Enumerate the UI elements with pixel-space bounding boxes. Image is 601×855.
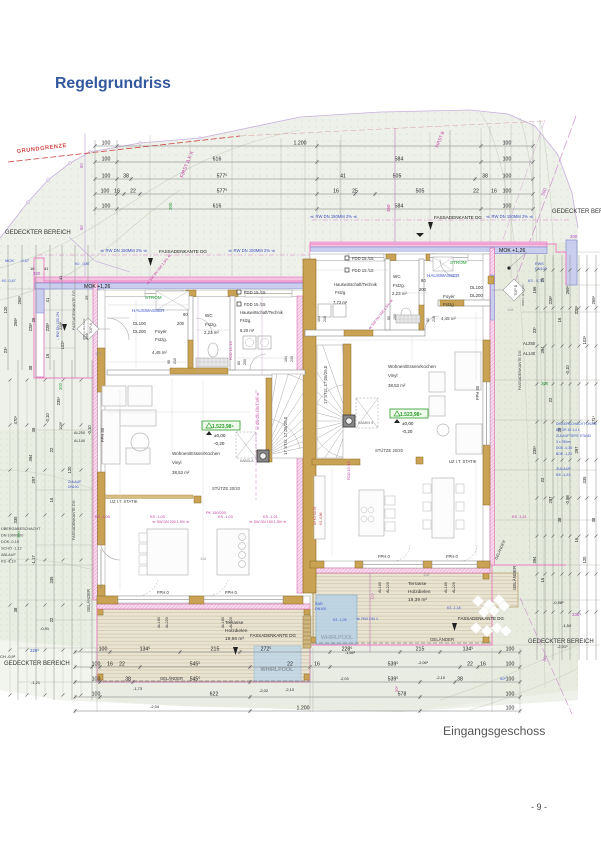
svg-text:KS -0,86: KS -0,86 (319, 512, 323, 525)
svg-text:ABLAUF: ABLAUF (1, 553, 16, 557)
svg-text:215: 215 (211, 647, 220, 653)
svg-text:K5 -1,23: K5 -1,23 (556, 473, 570, 477)
svg-text:16: 16 (49, 497, 54, 502)
svg-text:FPH 80: FPH 80 (475, 385, 480, 400)
svg-text:Hauswirtschaft/Technik: Hauswirtschaft/Technik (334, 282, 378, 287)
svg-text:228⁵: 228⁵ (45, 322, 50, 331)
svg-text:Wohnen/Essen/Kochen: Wohnen/Essen/Kochen (388, 364, 436, 369)
svg-text:16: 16 (45, 353, 50, 358)
svg-text:210: 210 (290, 356, 294, 362)
svg-text:120: 120 (582, 556, 587, 564)
svg-text:394: 394 (532, 556, 537, 564)
svg-text:19,39 m²: 19,39 m² (408, 597, 427, 603)
svg-text:300: 300 (58, 382, 63, 390)
svg-text:505: 505 (416, 189, 425, 195)
svg-text:100: 100 (99, 647, 108, 653)
svg-text:KS -1,05: KS -1,05 (150, 515, 165, 519)
svg-text:FASSADENKANTE DG: FASSADENKANTE DG (72, 500, 76, 540)
svg-text:Foyér: Foyér (443, 294, 455, 299)
svg-text:38: 38 (457, 677, 463, 683)
svg-text:38: 38 (123, 174, 129, 180)
svg-text:38: 38 (557, 517, 562, 522)
svg-text:23⁵: 23⁵ (3, 347, 8, 354)
svg-text:100: 100 (92, 662, 101, 668)
svg-text:50⁵: 50⁵ (394, 686, 399, 692)
svg-text:UZ I.T. STATIK: UZ I.T. STATIK (110, 499, 138, 504)
svg-text:AL220: AL220 (386, 582, 390, 593)
svg-text:269⁵: 269⁵ (565, 285, 570, 294)
svg-text:FDD 15 /15: FDD 15 /15 (352, 268, 374, 273)
svg-text:Holzdielen: Holzdielen (408, 589, 431, 595)
svg-text:AL160: AL160 (378, 582, 382, 593)
svg-text:Foyér: Foyér (155, 329, 167, 334)
svg-text:GEDECKTER BEREICH: GEDECKTER BEREICH (528, 639, 594, 645)
svg-text:17 STG: 17,06/26,0: 17 STG: 17,06/26,0 (283, 416, 288, 455)
svg-text:50: 50 (79, 163, 84, 168)
svg-text:≪ SW DN 150 1,5% ≪: ≪ SW DN 150 1,5% ≪ (249, 520, 287, 524)
svg-text:AL250: AL250 (523, 341, 536, 346)
svg-text:268⁵: 268⁵ (17, 295, 22, 304)
svg-text:Vinyl: Vinyl (172, 460, 181, 465)
svg-text:ZULAUF: ZULAUF (68, 480, 81, 484)
svg-text:22: 22 (540, 477, 545, 482)
svg-text:Wohnen/Essen/Kochen: Wohnen/Essen/Kochen (172, 451, 220, 456)
svg-text:DOK -0,35: DOK -0,35 (556, 446, 572, 450)
svg-text:16: 16 (314, 662, 320, 668)
svg-text:166: 166 (84, 333, 89, 340)
svg-text:AL220: AL220 (229, 617, 233, 628)
svg-text:Fstzg.: Fstzg. (155, 337, 167, 342)
svg-text:200: 200 (393, 314, 397, 320)
svg-text:1.523,98⁵: 1.523,98⁵ (400, 412, 422, 418)
svg-text:335: 335 (49, 576, 54, 584)
svg-text:AL220: AL220 (165, 617, 169, 628)
svg-text:616: 616 (213, 204, 222, 210)
svg-text:210: 210 (173, 358, 177, 364)
svg-text:DOK -0,10: DOK -0,10 (1, 540, 19, 544)
svg-text:545⁵: 545⁵ (190, 677, 201, 683)
svg-text:41: 41 (45, 297, 50, 302)
svg-text:≪ RW DN 150MM 2% ≪: ≪ RW DN 150MM 2% ≪ (486, 214, 534, 219)
svg-text:FPH 0: FPH 0 (225, 590, 238, 595)
svg-text:297: 297 (574, 446, 579, 454)
svg-text:WC: WC (205, 313, 213, 318)
svg-text:Terrasse: Terrasse (408, 581, 427, 587)
svg-text:FDD 15 /15: FDD 15 /15 (244, 290, 266, 295)
svg-text:470⁵: 470⁵ (13, 415, 18, 424)
svg-text:±0,00: ±0,00 (402, 421, 414, 426)
svg-text:100: 100 (506, 677, 515, 683)
svg-text:FPH 0: FPH 0 (378, 554, 391, 559)
svg-text:GELÄNDER: GELÄNDER (160, 676, 183, 681)
svg-text:Hauswirtschaft/Technik: Hauswirtschaft/Technik (240, 310, 284, 315)
svg-text:100: 100 (506, 692, 515, 698)
svg-text:297: 297 (548, 496, 553, 504)
svg-text:HAUSWASSER: HAUSWASSER (132, 308, 165, 313)
svg-text:38,53 m²: 38,53 m² (388, 383, 406, 388)
svg-text:577⁵: 577⁵ (217, 174, 228, 180)
svg-text:±0,00: ±0,00 (214, 433, 226, 438)
svg-text:AL160: AL160 (157, 617, 161, 628)
svg-text:GEDECKTER BEREICH: GEDECKTER BEREICH (4, 661, 70, 667)
svg-text:4,45 m²: 4,45 m² (441, 316, 456, 321)
svg-text:-1,56⁵: -1,56⁵ (345, 651, 356, 655)
svg-text:41: 41 (340, 174, 346, 180)
svg-text:3 x 780m³: 3 x 780m³ (556, 440, 572, 444)
svg-text:-2,10: -2,10 (436, 675, 446, 680)
svg-text:-0,67: -0,67 (20, 258, 30, 263)
svg-text:584: 584 (395, 204, 404, 210)
svg-text:228⁵: 228⁵ (548, 295, 553, 304)
svg-text:- 9 -: - 9 - (531, 802, 547, 812)
svg-text:GELÄNDER: GELÄNDER (430, 637, 454, 642)
svg-text:300: 300 (33, 271, 41, 276)
svg-text:16: 16 (480, 662, 486, 668)
svg-text:-2,06⁵: -2,06⁵ (418, 661, 429, 665)
svg-text:DN100: DN100 (315, 607, 326, 611)
svg-text:-0,20: -0,20 (402, 429, 413, 434)
svg-text:100: 100 (102, 157, 111, 163)
svg-text:38: 38 (125, 677, 131, 683)
svg-text:336⁵: 336⁵ (572, 612, 581, 617)
svg-text:215: 215 (416, 647, 425, 653)
svg-text:DN100: DN100 (68, 485, 79, 489)
svg-text:HAUSWASSER: HAUSWASSER (427, 273, 460, 278)
svg-text:-0,10: -0,10 (87, 425, 92, 435)
svg-text:16: 16 (30, 266, 35, 271)
svg-text:Eingangsgeschoss: Eingangsgeschoss (443, 724, 545, 738)
svg-text:Fstzg.: Fstzg. (335, 290, 346, 295)
svg-text:Regelgrundriss: Regelgrundriss (55, 75, 171, 92)
svg-text:GEDECKTER BEREICH: GEDECKTER BEREICH (5, 230, 71, 236)
svg-text:300: 300 (168, 202, 173, 210)
svg-text:539⁵: 539⁵ (388, 662, 399, 668)
svg-text:228⁵: 228⁵ (58, 321, 63, 330)
svg-text:-2,02: -2,02 (259, 688, 269, 693)
svg-text:335: 335 (13, 516, 18, 524)
svg-text:104: 104 (284, 356, 288, 362)
svg-text:-2,10: -2,10 (285, 687, 295, 692)
svg-text:22: 22 (548, 397, 553, 402)
svg-text:300: 300 (570, 234, 578, 239)
svg-text:297: 297 (31, 476, 36, 484)
svg-text:622: 622 (210, 692, 219, 698)
svg-text:KS -1,01: KS -1,01 (263, 515, 278, 519)
svg-text:-1,21: -1,21 (31, 680, 41, 685)
svg-text:16: 16 (557, 317, 562, 322)
svg-text:100: 100 (503, 141, 512, 147)
svg-text:AL220: AL220 (452, 582, 456, 593)
svg-text:100: 100 (503, 157, 512, 163)
svg-text:-0,10: -0,10 (565, 365, 570, 375)
svg-text:16: 16 (333, 189, 339, 195)
svg-text:7,72 m²: 7,72 m² (333, 300, 348, 305)
svg-text:228⁵: 228⁵ (574, 305, 579, 314)
svg-text:Fstzg.: Fstzg. (443, 302, 455, 307)
svg-text:100: 100 (506, 662, 515, 668)
svg-text:TOP B: TOP B (514, 284, 518, 296)
svg-text:100: 100 (102, 174, 111, 180)
svg-text:300: 300 (541, 381, 549, 386)
svg-text:FASSADENKANTE DG: FASSADENKANTE DG (458, 616, 504, 621)
svg-text:22: 22 (119, 662, 125, 668)
svg-text:≪ SW DN 100 1,5% ≪: ≪ SW DN 100 1,5% ≪ (256, 392, 260, 430)
svg-text:-0,20: -0,20 (214, 441, 225, 446)
svg-text:FASSADENKANTE DG: FASSADENKANTE DG (250, 633, 296, 638)
svg-text:FDO 15 /15: FDO 15 /15 (347, 461, 351, 480)
svg-text:38,53 m²: 38,53 m² (172, 470, 190, 475)
svg-text:8,20 m²: 8,20 m² (240, 328, 255, 333)
svg-text:577⁵: 577⁵ (217, 189, 228, 195)
svg-text:WC: WC (393, 274, 401, 279)
svg-text:CH -0,9⁵: CH -0,9⁵ (0, 654, 16, 659)
svg-text:38: 38 (31, 427, 36, 432)
svg-text:≪ RW DN 1: ≪ RW DN 1 (356, 616, 379, 621)
svg-text:K0 - 0,87: K0 - 0,87 (75, 262, 90, 266)
svg-text:16: 16 (107, 662, 113, 668)
svg-text:GELÄNDER: GELÄNDER (86, 589, 91, 612)
svg-text:ÜBERGABESCHACHT: ÜBERGABESCHACHT (1, 527, 41, 531)
svg-text:DL100: DL100 (133, 321, 146, 326)
svg-text:1.200: 1.200 (294, 141, 307, 147)
svg-text:Fstzg.: Fstzg. (393, 283, 405, 288)
svg-text:FASSADENKANTE DG: FASSADENKANTE DG (518, 350, 522, 390)
svg-text:38: 38 (591, 517, 596, 522)
svg-text:MOK +1,26: MOK +1,26 (499, 248, 525, 254)
svg-text:BOK -1,23: BOK -1,23 (556, 452, 572, 456)
svg-text:KS -1,21: KS -1,21 (512, 515, 527, 519)
svg-text:FASSADENKANTE DG: FASSADENKANTE DG (434, 215, 482, 220)
svg-text:K0 -0,87: K0 -0,87 (2, 279, 16, 283)
svg-text:200: 200 (243, 359, 247, 365)
svg-text:KS -1,10: KS -1,10 (1, 560, 16, 564)
svg-text:50⁵: 50⁵ (500, 676, 506, 681)
svg-text:AL140: AL140 (74, 439, 85, 443)
svg-text:17 STG: 17,06/26,0: 17 STG: 17,06/26,0 (323, 365, 328, 404)
svg-text:100: 100 (101, 189, 110, 195)
svg-text:STÜTZE 20/20: STÜTZE 20/20 (375, 448, 404, 453)
svg-text:118: 118 (423, 572, 430, 577)
svg-text:AL160: AL160 (444, 582, 448, 593)
svg-text:210: 210 (323, 316, 327, 322)
svg-text:ZULAUF: ZULAUF (556, 467, 571, 471)
svg-text:-0,98⁵: -0,98⁵ (553, 600, 564, 605)
svg-text:MOK: MOK (5, 258, 14, 263)
svg-text:200: 200 (419, 287, 427, 292)
svg-text:FPH 80: FPH 80 (100, 427, 105, 442)
svg-text:Vinyl: Vinyl (388, 373, 397, 378)
svg-text:-0,91: -0,91 (40, 626, 50, 631)
svg-text:235⁵: 235⁵ (532, 445, 537, 454)
svg-text:1.200: 1.200 (297, 706, 310, 712)
svg-text:584: 584 (395, 157, 404, 163)
svg-text:90: 90 (167, 360, 171, 364)
svg-text:K3 -1,05: K3 -1,05 (333, 618, 347, 622)
svg-text:16: 16 (491, 189, 497, 195)
svg-text:BE GR 15 1,4 L: BE GR 15 1,4 L (556, 428, 580, 432)
svg-text:AL250: AL250 (74, 431, 85, 435)
svg-text:AL160: AL160 (221, 617, 225, 628)
svg-text:FASSADENKANTE DG: FASSADENKANTE DG (159, 249, 207, 254)
svg-text:104: 104 (317, 316, 321, 322)
svg-text:269⁵: 269⁵ (13, 317, 18, 326)
svg-text:FDD 15 /15: FDD 15 /15 (244, 302, 266, 307)
svg-text:80: 80 (183, 312, 188, 317)
svg-text:16: 16 (540, 577, 545, 582)
svg-text:120: 120 (3, 306, 8, 314)
svg-text:100: 100 (506, 706, 515, 712)
svg-text:22: 22 (473, 189, 479, 195)
svg-text:2,23 m²: 2,23 m² (392, 291, 407, 296)
svg-text:Fstzg.: Fstzg. (240, 318, 251, 323)
svg-text:100: 100 (503, 174, 512, 180)
svg-text:100: 100 (92, 677, 101, 683)
svg-text:38: 38 (482, 174, 488, 180)
svg-text:A9 K3 SU 55: A9 K3 SU 55 (313, 506, 317, 525)
svg-text:272⁵: 272⁵ (261, 647, 272, 653)
svg-text:Terrasse: Terrasse (225, 620, 244, 626)
svg-text:25: 25 (84, 295, 89, 300)
svg-text:118: 118 (200, 556, 207, 561)
svg-text:-2,03: -2,03 (340, 677, 349, 681)
svg-text:166: 166 (532, 286, 537, 294)
svg-text:328⁵: 328⁵ (30, 648, 39, 653)
svg-text:≪ RW DN 150MM 2% ≪: ≪ RW DN 150MM 2% ≪ (310, 214, 358, 219)
svg-text:-1,54: -1,54 (562, 623, 572, 628)
svg-text:22: 22 (467, 662, 473, 668)
svg-text:≪ RW DN 150MM 2% ≪: ≪ RW DN 150MM 2% ≪ (228, 248, 276, 253)
svg-text:22: 22 (49, 617, 54, 622)
svg-text:FDO 15 /15: FDO 15 /15 (229, 341, 233, 360)
svg-text:22: 22 (287, 662, 293, 668)
svg-text:STROM: STROM (145, 295, 162, 300)
svg-text:4,45 m²: 4,45 m² (152, 350, 167, 355)
svg-text:DL200: DL200 (133, 329, 146, 334)
svg-text:269⁵: 269⁵ (591, 295, 596, 304)
svg-text:-0,98: -0,98 (565, 495, 570, 505)
svg-text:134⁵: 134⁵ (140, 647, 151, 653)
svg-text:228⁵: 228⁵ (28, 322, 33, 331)
svg-text:DL200: DL200 (470, 293, 483, 298)
svg-text:38: 38 (13, 607, 18, 612)
svg-text:FPH 0: FPH 0 (157, 590, 170, 595)
svg-text:-1,17: -1,17 (31, 555, 36, 565)
svg-text:≪ RW DN 150MM 2% ≪: ≪ RW DN 150MM 2% ≪ (100, 248, 148, 253)
svg-text:RAR: RAR (315, 602, 323, 606)
svg-text:235⁵: 235⁵ (56, 396, 61, 405)
svg-text:KABOLA: KABOLA (240, 459, 254, 463)
svg-text:210: 210 (432, 316, 436, 322)
svg-text:25: 25 (540, 277, 545, 282)
svg-text:UZ I.T. STATIK: UZ I.T. STATIK (449, 459, 477, 464)
svg-text:STROM: STROM (450, 260, 467, 265)
svg-text:WHIRLPOOL: WHIRLPOOL (321, 635, 353, 641)
svg-text:200: 200 (177, 321, 185, 326)
svg-text:394: 394 (540, 346, 545, 354)
svg-text:22: 22 (130, 189, 136, 195)
svg-text:22: 22 (49, 447, 54, 452)
svg-text:25: 25 (31, 317, 36, 322)
svg-text:ZULAUFTIEFE STAND: ZULAUFTIEFE STAND (556, 434, 592, 438)
svg-text:19,66 m²: 19,66 m² (225, 636, 244, 642)
svg-text:103⁵: 103⁵ (58, 421, 63, 430)
svg-text:K3 -1,18: K3 -1,18 (447, 606, 461, 610)
svg-text:335: 335 (582, 476, 587, 484)
svg-text:134⁵: 134⁵ (463, 647, 474, 653)
svg-text:120: 120 (67, 466, 72, 474)
svg-text:≪ SW DN 200 1,5% ≪: ≪ SW DN 200 1,5% ≪ (152, 520, 190, 524)
svg-text:80: 80 (237, 361, 241, 365)
svg-text:DICKERSCHACHT DN100: DICKERSCHACHT DN100 (556, 422, 597, 426)
svg-text:350: 350 (386, 204, 391, 212)
svg-text:50: 50 (79, 225, 84, 230)
svg-text:Fstzg.: Fstzg. (205, 322, 217, 327)
svg-text:103⁵: 103⁵ (60, 340, 65, 349)
svg-text:80: 80 (421, 278, 426, 283)
svg-text:80: 80 (387, 316, 391, 320)
svg-text:100: 100 (506, 647, 515, 653)
svg-text:100: 100 (92, 692, 101, 698)
svg-text:100: 100 (102, 204, 111, 210)
svg-text:-2,04: -2,04 (150, 704, 160, 709)
svg-text:GELÄNDER: GELÄNDER (512, 566, 517, 590)
svg-text:116: 116 (95, 351, 102, 356)
svg-text:539⁵: 539⁵ (388, 677, 399, 683)
svg-text:DL100: DL100 (470, 285, 483, 290)
svg-text:41: 41 (44, 266, 49, 271)
svg-text:100: 100 (503, 189, 512, 195)
svg-text:FASSADENKANTE DG: FASSADENKANTE DG (72, 290, 76, 330)
svg-text:616: 616 (213, 157, 222, 163)
svg-text:SCHÖ -1,12: SCHÖ -1,12 (1, 547, 22, 551)
svg-text:23⁵: 23⁵ (532, 327, 537, 334)
svg-text:16: 16 (574, 537, 579, 542)
svg-text:KAMIN 9: KAMIN 9 (358, 421, 373, 425)
svg-text:RWS: RWS (535, 262, 544, 266)
svg-text:STÜTZE 20/20: STÜTZE 20/20 (212, 486, 241, 491)
svg-text:AL140: AL140 (523, 351, 536, 356)
svg-text:GEDECKTER BEREICH: GEDECKTER BEREICH (552, 209, 601, 215)
svg-text:25: 25 (352, 189, 358, 195)
svg-text:545⁵: 545⁵ (190, 662, 201, 668)
svg-text:KS -1,03: KS -1,03 (218, 515, 233, 519)
svg-text:41: 41 (58, 275, 63, 280)
svg-text:WNFL:111,63m²: WNFL:111,63m² (521, 284, 525, 306)
svg-text:394: 394 (28, 454, 33, 462)
svg-text:300: 300 (16, 531, 21, 538)
svg-text:FPH 0: FPH 0 (446, 554, 459, 559)
svg-text:505: 505 (393, 174, 402, 180)
svg-text:-0,10: -0,10 (45, 413, 50, 423)
svg-text:WHIRLPOOL: WHIRLPOOL (261, 667, 295, 673)
svg-text:PK 150/200: PK 150/200 (206, 511, 226, 515)
svg-text:KS -1,08: KS -1,08 (95, 515, 110, 519)
svg-text:38: 38 (28, 365, 33, 370)
svg-text:FDD 15 /15: FDD 15 /15 (352, 256, 374, 261)
svg-text:100: 100 (503, 204, 512, 210)
svg-text:TOP A: TOP A (89, 322, 93, 334)
svg-text:-1,73: -1,73 (133, 686, 143, 691)
svg-text:103⁵: 103⁵ (582, 335, 587, 344)
svg-text:100: 100 (102, 141, 111, 147)
svg-text:90: 90 (426, 318, 430, 322)
svg-text:116: 116 (507, 307, 514, 312)
svg-text:1.523,98⁵: 1.523,98⁵ (212, 424, 234, 430)
svg-text:2,23 m²: 2,23 m² (204, 330, 219, 335)
